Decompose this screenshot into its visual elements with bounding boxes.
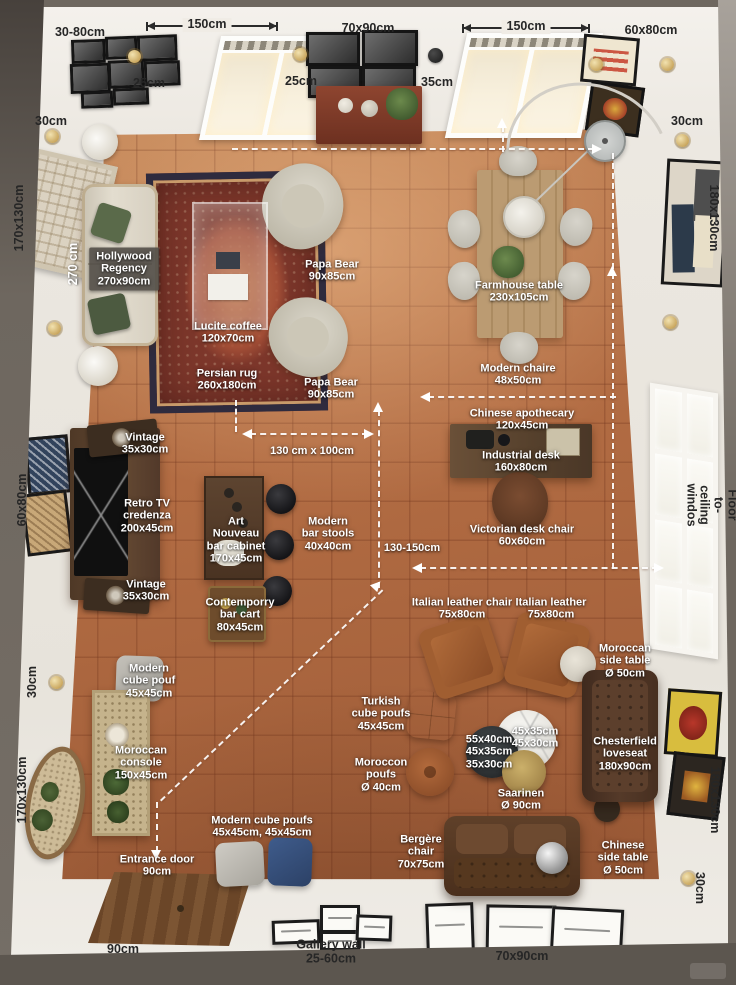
picture-frame (137, 34, 178, 61)
window-blind (469, 38, 597, 47)
label-modern-chairs: Modern chaire 48x50cm (480, 363, 555, 388)
dining-chair (499, 146, 537, 176)
dim-gallery-top-left: 30-80cm (55, 26, 105, 40)
typewriter (466, 430, 494, 449)
dim-left-art: 60x80cm (16, 474, 30, 527)
dim-sconce-3: 35cm (421, 76, 453, 90)
pendant-lamp (503, 196, 545, 238)
floor-plan-render: 30-80cm 150cm 25cm 70x90cm 25cm 35cm 150… (0, 0, 736, 985)
label-industrial-desk: Industrial desk 160x80cm (482, 450, 560, 475)
dash-line-rug-connector (235, 400, 237, 432)
label-papa-bear-bottom: Papa Bear 90x85cm (304, 377, 358, 402)
dash-line-desk-bottom (420, 567, 658, 569)
desk-lamp (498, 434, 510, 446)
label-persian-rug: Persian rug 260x180cm (197, 368, 258, 393)
coffee-table-books (208, 274, 248, 300)
potted-plant (386, 88, 418, 120)
bottle (224, 488, 234, 498)
picture-frame (81, 91, 114, 109)
console-plant (107, 801, 129, 823)
label-chesterfield: Chesterfield loveseat 180x90cm (593, 736, 657, 773)
art-shape (672, 204, 695, 272)
label-victorian-chair: Victorian desk chair 60x60cm (470, 524, 574, 549)
plant-sprig (39, 781, 60, 804)
dash-line-center-column (378, 410, 380, 588)
label-chinese-side-table: Chinese side table Ø 50cm (598, 840, 649, 877)
label-retro-credenza: Retro TV credenza 200x45cm (121, 498, 174, 535)
dim-tapestry: 170x130cm (13, 185, 27, 252)
clock-center (602, 138, 608, 144)
window-pane (205, 53, 279, 135)
label-cube-poufs-pair: Modern cube poufs 45x45cm, 45x45cm (211, 815, 312, 840)
label-bergere-chair: Bergère chair 70x75cm (398, 834, 445, 871)
dash-line-right-column (612, 153, 614, 569)
wall-sconce (46, 130, 59, 143)
chair-seat (429, 623, 495, 689)
framed-art-left-1 (24, 434, 73, 496)
window-pane (655, 454, 682, 518)
floor-lamp (82, 124, 118, 160)
plant-sprig (30, 807, 55, 832)
label-moroccan-console: Moroccan console 150x45cm (115, 745, 168, 782)
dim-right-art: 180x130cm (706, 185, 720, 252)
floor-lamp (78, 346, 118, 386)
dim-sconce-2: 25cm (285, 75, 317, 89)
label-gallery-wall: Gallery wall 25-60cm (296, 938, 365, 966)
dash-line-door (156, 802, 158, 852)
modern-cube-pouf-blue (267, 837, 313, 887)
window-pane (687, 524, 714, 588)
throw-pillow (87, 292, 132, 335)
dim-left-mirror: 170x130cm (16, 757, 30, 824)
label-vintage-speaker-top: Vintage 35x30cm (122, 432, 169, 457)
label-lucite-coffee: Lucite coffee 120x70cm (194, 321, 262, 346)
dim-right-sconce-2: 30cm (692, 872, 706, 904)
wall-sconce (50, 676, 63, 689)
label-measure-130-150: 130-150cm (384, 542, 440, 554)
modern-cube-pouf-gray-2 (215, 841, 265, 887)
wall-sconce (128, 50, 141, 63)
window-pane (687, 589, 714, 653)
bar-stool (266, 484, 296, 514)
gallery-floor-frame (320, 905, 360, 933)
dash-line-top (232, 148, 594, 150)
chair-seat (275, 178, 330, 234)
table-plant (492, 246, 524, 278)
dim-right-sconce-1: 30cm (671, 115, 703, 129)
label-floor-to-ceiling-window: Floor to-ceiling windos (684, 483, 736, 526)
poster-right-1 (664, 688, 722, 758)
chair-seat (283, 312, 334, 362)
label-nesting-sizes-1: 55x40cm 45x35cm 35x30cm (466, 734, 513, 771)
label-moroccan-side-table: Moroccan side table Ø 50cm (599, 643, 651, 680)
console-bowl (105, 723, 129, 747)
label-vintage-speaker-bottom: Vintage 35x30cm (123, 579, 170, 604)
label-turkish-poufs: Turkish cube poufs 45x45cm (352, 696, 411, 733)
window-pane (655, 519, 682, 583)
dim-photo-grid: 70x90cm (342, 22, 395, 36)
door-handle (177, 905, 184, 912)
vase (361, 100, 378, 117)
label-entrance-door: Entrance door 90cm (120, 854, 195, 879)
label-moroccon-poufs: Moroccon poufs Ø 40cm (355, 757, 408, 794)
label-chinese-apothecary: Chinese apothecary 120x45cm (470, 408, 575, 433)
window-pane (655, 584, 682, 648)
label-papa-bear-top: Papa Bear 90x85cm (305, 259, 359, 284)
bar-stool (264, 530, 294, 560)
wall-sconce (664, 316, 677, 329)
label-measure-130x100: 130 cm x 100cm (270, 445, 354, 457)
label-bar-stools: Modern bar stools 40x40cm (302, 516, 355, 553)
wall-sconce (661, 58, 674, 71)
label-hollywood-regency: Hollywood Regency 270x90cm (89, 248, 159, 291)
wall-sconce (48, 322, 61, 335)
dim-left-sconce-1: 30cm (35, 115, 67, 129)
dim-sofa-length: 270 cm (67, 243, 81, 285)
wall-sconce (428, 48, 443, 63)
coffee-table-tray (216, 252, 240, 269)
sofa-cushion (456, 824, 508, 854)
label-art-nouveau-cabinet: Art Nouveau bar cabinet 170x45cm (207, 515, 266, 564)
wall-sconce (676, 134, 689, 147)
dim-right-posters: 180x130cm (707, 767, 721, 834)
label-italian-chair-left: Italian leather chair 75x80cm (412, 597, 512, 622)
dim-bottom-frames: 70x90cm (496, 950, 549, 964)
picture-frame (70, 63, 111, 94)
wall-clock (584, 120, 626, 162)
wall-sconce (294, 48, 307, 61)
wall-sconce (590, 58, 603, 71)
poster-top-right-1 (580, 34, 640, 87)
watermark (690, 963, 726, 979)
lucite-coffee-table (192, 202, 268, 330)
gallery-floor-frame (425, 902, 475, 954)
window-pane (687, 393, 714, 457)
dash-line-130x100 (250, 433, 368, 435)
dim-window-left: 150cm (183, 18, 232, 32)
entry-credenza (316, 86, 422, 144)
dim-posters-top-right: 60x80cm (625, 24, 678, 38)
window-pane (655, 388, 682, 452)
label-bar-cart: Contemporry bar cart 80x45cm (205, 597, 274, 634)
dash-line-dining-bottom (428, 396, 616, 398)
dash-line-window-connector (502, 126, 504, 152)
label-italian-chair-right: Italian leather 75x80cm (516, 597, 587, 622)
dim-window-right: 150cm (502, 20, 551, 34)
dim-left-sconce-2: 30cm (26, 666, 40, 698)
dim-sconce-1: 25cm (133, 77, 165, 91)
label-cube-pouf: Modern cube pouf 45x45cm (123, 663, 176, 700)
label-saarinen: Saarinen Ø 90cm (498, 788, 544, 813)
label-nesting-sizes-2: 45x35cm 45x30cm (512, 726, 559, 751)
dim-door-width: 90cm (107, 943, 139, 957)
moroccan-round-pouf (406, 748, 454, 796)
vase (338, 98, 353, 113)
poster-art (677, 705, 708, 741)
pouf-button (424, 766, 436, 778)
bottle (232, 502, 242, 512)
photo-frame (306, 32, 360, 66)
gallery-frames-top-left (69, 34, 189, 104)
chrome-floor-lamp (536, 842, 568, 874)
gallery-floor-frame (550, 906, 625, 960)
picture-frame (71, 39, 106, 64)
label-farmhouse-table: Farmhouse table 230x105cm (475, 280, 563, 305)
